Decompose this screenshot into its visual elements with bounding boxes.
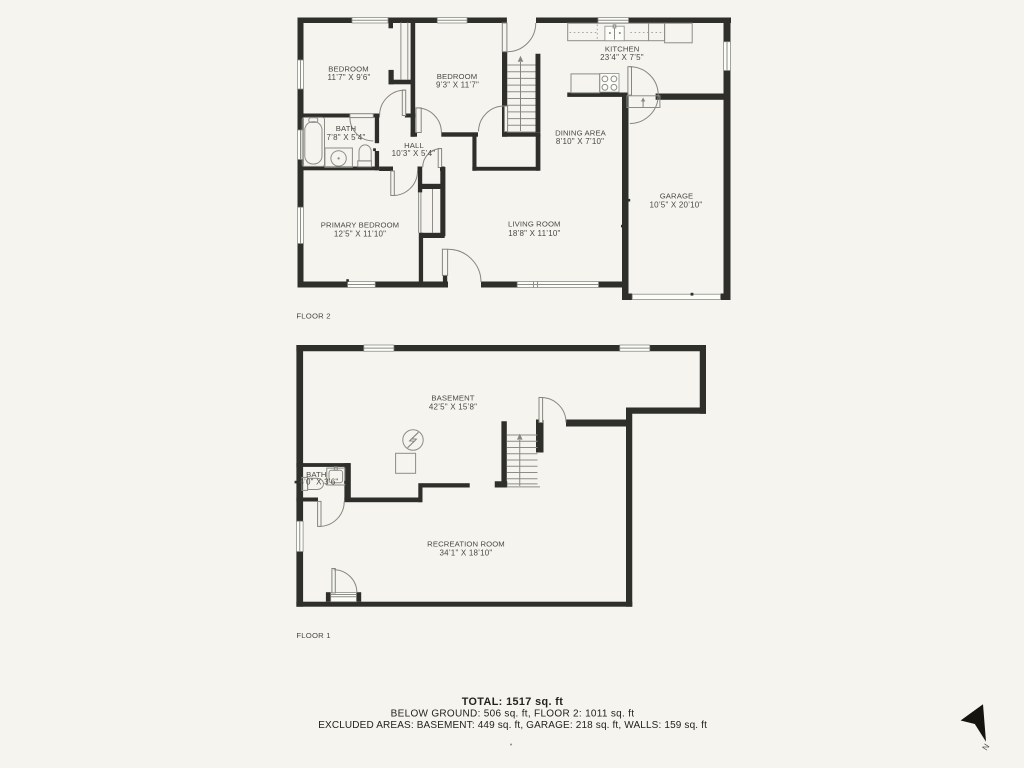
svg-text:RECREATION ROOM: RECREATION ROOM	[427, 540, 505, 549]
svg-text:BATH: BATH	[336, 124, 356, 133]
svg-text:11’7" X 9’6": 11’7" X 9’6"	[327, 73, 370, 82]
svg-text:FLOOR 2: FLOOR 2	[296, 312, 330, 321]
svg-text:EXCLUDED AREAS: BASEMENT: 449: EXCLUDED AREAS: BASEMENT: 449 sq. ft, GA…	[318, 720, 707, 731]
svg-text:FLOOR 1: FLOOR 1	[296, 631, 330, 640]
svg-text:34’1" X 18’10": 34’1" X 18’10"	[440, 549, 493, 558]
svg-text:18’8" X 11’10": 18’8" X 11’10"	[508, 229, 560, 238]
svg-text:LIVING ROOM: LIVING ROOM	[508, 220, 561, 229]
svg-text:7’8" X 5’4": 7’8" X 5’4"	[326, 133, 365, 142]
svg-text:12’5" X 11’10": 12’5" X 11’10"	[334, 229, 386, 238]
svg-text:BELOW GROUND: 506 sq. ft, FLOO: BELOW GROUND: 506 sq. ft, FLOOR 2: 1011 …	[391, 709, 635, 720]
svg-text:PRIMARY BEDROOM: PRIMARY BEDROOM	[321, 221, 399, 230]
svg-text:10’3" X 5’4": 10’3" X 5’4"	[392, 149, 436, 158]
svg-text:4’0" X 3’6": 4’0" X 3’6"	[299, 478, 338, 487]
svg-text:42’5" X 15’8": 42’5" X 15’8"	[429, 403, 477, 412]
svg-text:TOTAL: 1517 sq. ft: TOTAL: 1517 sq. ft	[462, 696, 564, 708]
svg-text:9’3" X 11’7": 9’3" X 11’7"	[436, 81, 479, 90]
svg-text:GARAGE: GARAGE	[660, 192, 694, 201]
svg-text:23’4" X 7’5": 23’4" X 7’5"	[600, 53, 644, 62]
svg-text:8’10" X 7’10": 8’10" X 7’10"	[556, 137, 604, 146]
svg-text:BASEMENT: BASEMENT	[431, 394, 474, 403]
svg-text:10’5" X 20’10": 10’5" X 20’10"	[650, 201, 703, 210]
